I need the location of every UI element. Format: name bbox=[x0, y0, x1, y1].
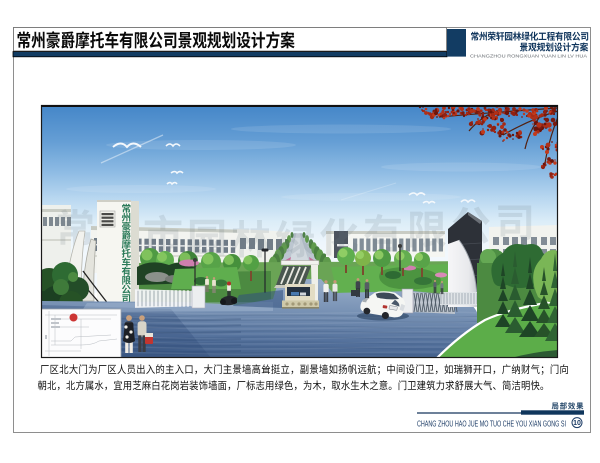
svg-text:CHANGZHOU RONGXUAN YUAN LIN LV: CHANGZHOU RONGXUAN YUAN LIN LV HUA bbox=[470, 54, 588, 60]
svg-text:CHANG ZHOU HAO JUE MO TUO CHE: CHANG ZHOU HAO JUE MO TUO CHE YOU XIAN G… bbox=[417, 418, 566, 428]
svg-text:10: 10 bbox=[573, 420, 581, 427]
